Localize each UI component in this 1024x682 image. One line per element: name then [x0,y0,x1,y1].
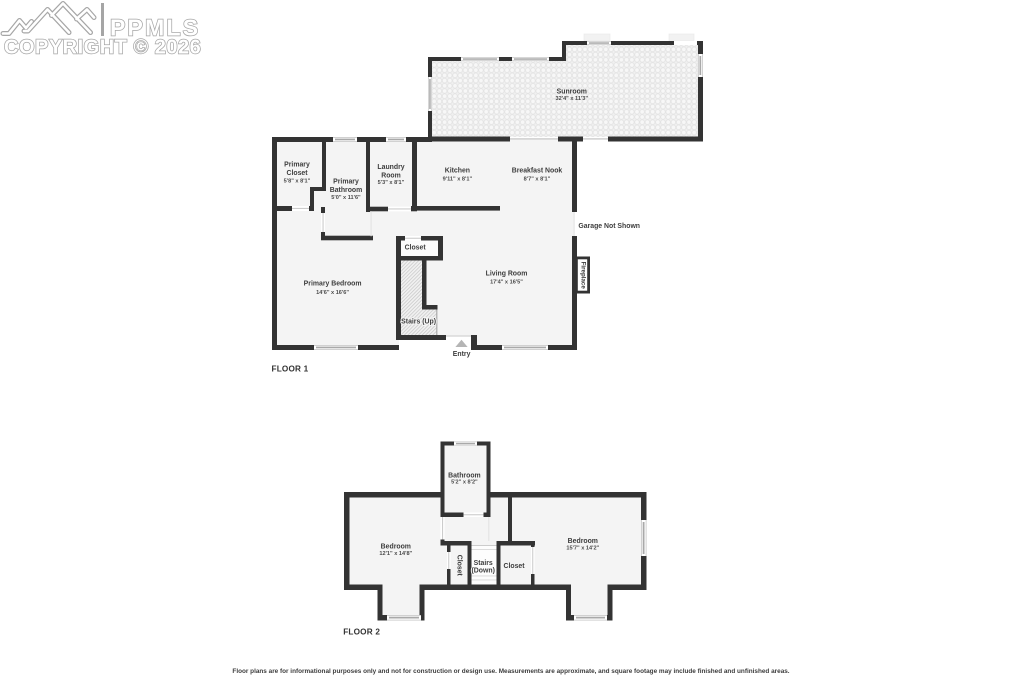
svg-text:Bedroom: Bedroom [381,543,411,550]
svg-text:Stairs: Stairs [474,560,493,567]
svg-text:15'7" x 14'2": 15'7" x 14'2" [566,545,599,551]
svg-text:9'11" x 8'1": 9'11" x 8'1" [443,176,473,182]
svg-text:5'0" x 11'6": 5'0" x 11'6" [331,195,361,201]
svg-text:5'3" x 8'1": 5'3" x 8'1" [378,180,405,186]
svg-text:Sunroom: Sunroom [557,88,587,95]
svg-text:Closet: Closet [286,170,308,177]
svg-text:Bathroom: Bathroom [330,187,363,194]
svg-text:Primary: Primary [333,179,359,186]
svg-text:Stairs (Up): Stairs (Up) [401,318,436,325]
svg-text:FLOOR 1: FLOOR 1 [272,365,309,374]
svg-text:COPYRIGHT © 2026: COPYRIGHT © 2026 [4,37,201,59]
svg-text:Bedroom: Bedroom [568,538,598,545]
svg-text:14'6" x 16'6": 14'6" x 16'6" [316,290,349,296]
svg-text:FLOOR 2: FLOOR 2 [343,627,380,636]
svg-text:Kitchen: Kitchen [445,168,470,175]
svg-text:Entry: Entry [453,351,471,358]
svg-text:Closet: Closet [405,244,427,251]
svg-text:Living Room: Living Room [486,271,528,278]
svg-text:Floor plans are for informatio: Floor plans are for informational purpos… [232,668,789,675]
svg-text:17'4" x 16'5": 17'4" x 16'5" [490,279,523,285]
svg-text:Breakfast Nook: Breakfast Nook [512,168,563,175]
svg-text:Room: Room [381,172,401,179]
svg-text:Closet: Closet [503,563,525,570]
svg-text:12'1" x 14'8": 12'1" x 14'8" [379,551,412,557]
svg-text:Primary: Primary [284,162,310,169]
svg-text:Laundry: Laundry [377,164,404,171]
svg-text:Primary Bedroom: Primary Bedroom [304,281,362,288]
svg-text:8'7" x 8'1": 8'7" x 8'1" [524,176,551,182]
svg-text:5'8" x 8'1": 5'8" x 8'1" [284,178,311,184]
svg-text:32'4" x 11'3": 32'4" x 11'3" [556,96,589,102]
svg-text:Garage Not Shown: Garage Not Shown [578,223,640,230]
svg-text:Closet: Closet [455,555,462,577]
svg-text:(Down): (Down) [472,568,495,575]
svg-text:5'2" x 8'2": 5'2" x 8'2" [451,480,478,486]
svg-text:Fireplace: Fireplace [579,262,586,290]
svg-text:Bathroom: Bathroom [448,472,481,479]
